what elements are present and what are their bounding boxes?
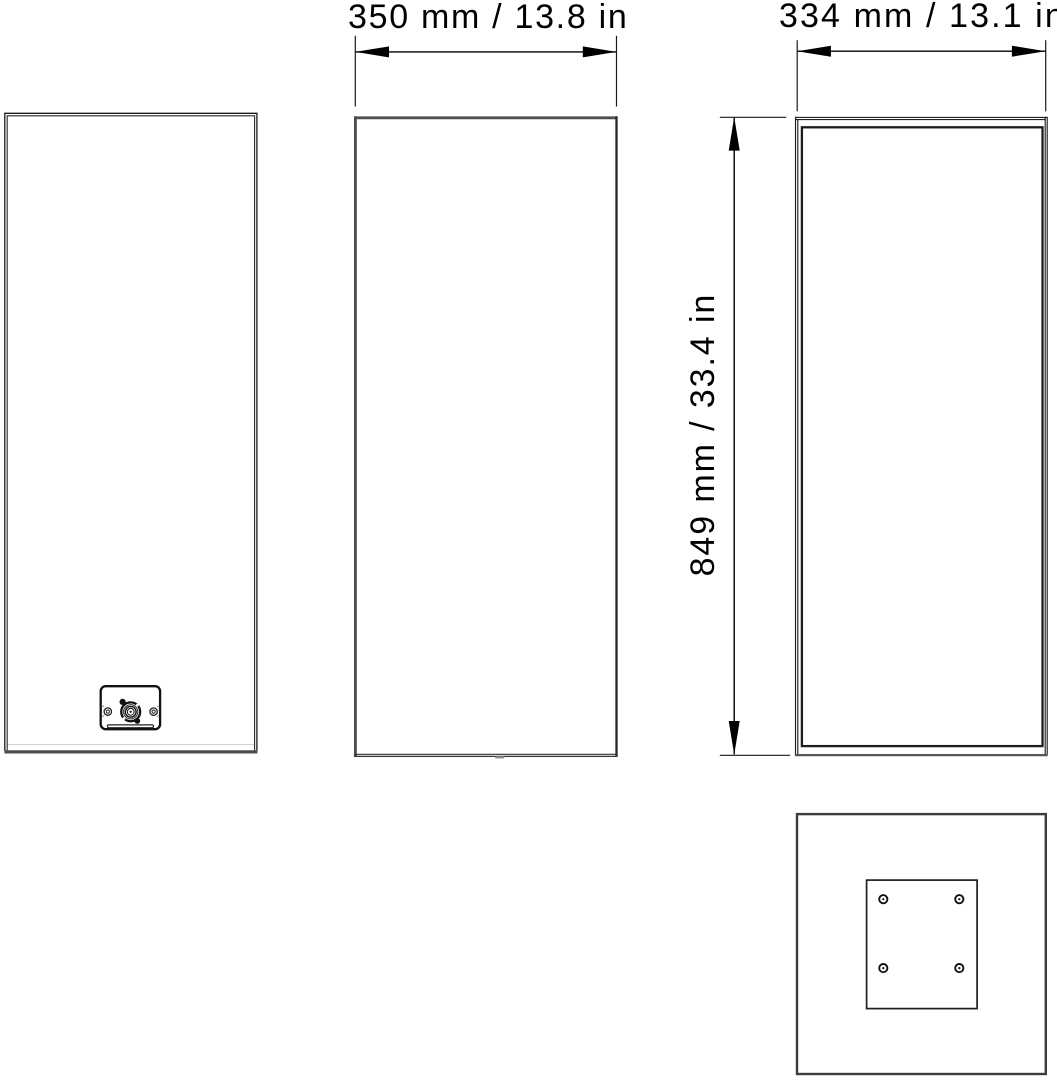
svg-text:849 mm / 33.4 in: 849 mm / 33.4 in: [684, 293, 722, 577]
svg-text:334 mm / 13.1 in: 334 mm / 13.1 in: [779, 0, 1057, 35]
svg-text:350 mm / 13.8 in: 350 mm / 13.8 in: [348, 0, 628, 36]
